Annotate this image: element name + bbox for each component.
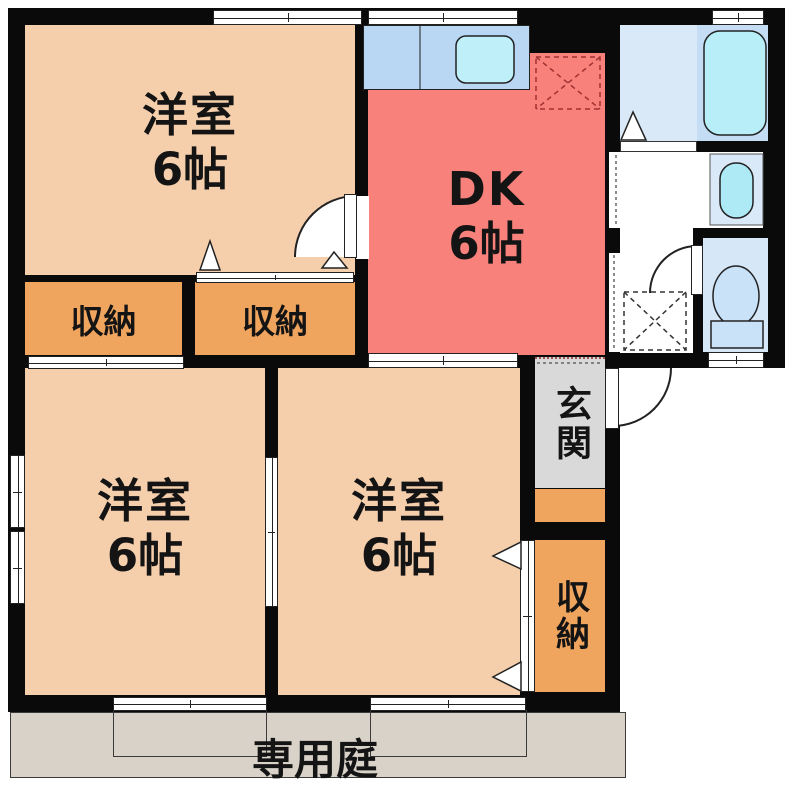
kitchen-counter — [363, 25, 530, 90]
washroom-floor-upper — [620, 152, 763, 228]
window-bedroom1-top — [213, 10, 362, 25]
closet-2: 収納 — [195, 282, 355, 355]
entrance-door-leaf — [605, 368, 619, 429]
room-size: 6帖 — [152, 143, 228, 198]
bedroom1-door-leaf — [344, 194, 357, 258]
toilet-room-floor — [703, 238, 768, 352]
closet1-sliding-door — [28, 356, 184, 369]
closet3-sliding-door — [520, 540, 535, 692]
room-bedroom-3: 洋室 6帖 — [278, 368, 520, 695]
bedroom2-bedroom3-partition — [265, 457, 278, 607]
garden-label: 専用庭 — [225, 726, 405, 787]
room-size: 6帖 — [361, 529, 437, 584]
window-bedroom2-left-upper — [10, 455, 25, 528]
dk-bedroom3-sliding-door — [368, 353, 518, 368]
bath-entry-step — [620, 141, 697, 152]
hall-passage-lower — [609, 253, 620, 352]
room-size: 6帖 — [448, 217, 524, 272]
room-dk: DK 6帖 — [368, 53, 605, 355]
room-label: DK — [448, 161, 526, 217]
bathtub-zone — [697, 25, 768, 141]
closet-label: 収納 — [546, 579, 595, 653]
closet-3: 収納 — [535, 540, 605, 692]
room-label: 洋室 — [351, 473, 447, 529]
room-bedroom-2: 洋室 6帖 — [25, 368, 265, 695]
window-bath-top — [712, 10, 764, 25]
hall-passage-upper — [609, 152, 620, 228]
closet2-folding-door — [196, 272, 354, 283]
entrance-genkan: 玄関 — [535, 357, 605, 488]
window-bedroom2-bottom — [113, 697, 267, 711]
closet-1: 収納 — [25, 282, 182, 355]
shoe-cabinet — [535, 489, 605, 522]
room-size: 6帖 — [107, 529, 183, 584]
window-bedroom3-bottom — [370, 697, 526, 711]
window-bedroom2-left-lower — [10, 531, 25, 604]
room-label: 洋室 — [142, 87, 238, 143]
closet-label: 収納 — [242, 295, 308, 343]
floor-plan: 専用庭 洋室 6帖 DK 6帖 洋室 6帖 洋室 6帖 収納 収納 玄関 収納 — [0, 0, 800, 800]
entrance-door-swing — [613, 368, 672, 427]
toilet-step — [708, 352, 764, 368]
bathroom-floor — [620, 25, 697, 141]
closet-label: 収納 — [71, 295, 137, 343]
window-kitchen-top — [368, 10, 518, 25]
bedroom1-doorway — [356, 196, 369, 259]
toilet-door-leaf — [691, 245, 703, 295]
room-label: 洋室 — [97, 473, 193, 529]
entrance-label: 玄関 — [544, 385, 596, 463]
